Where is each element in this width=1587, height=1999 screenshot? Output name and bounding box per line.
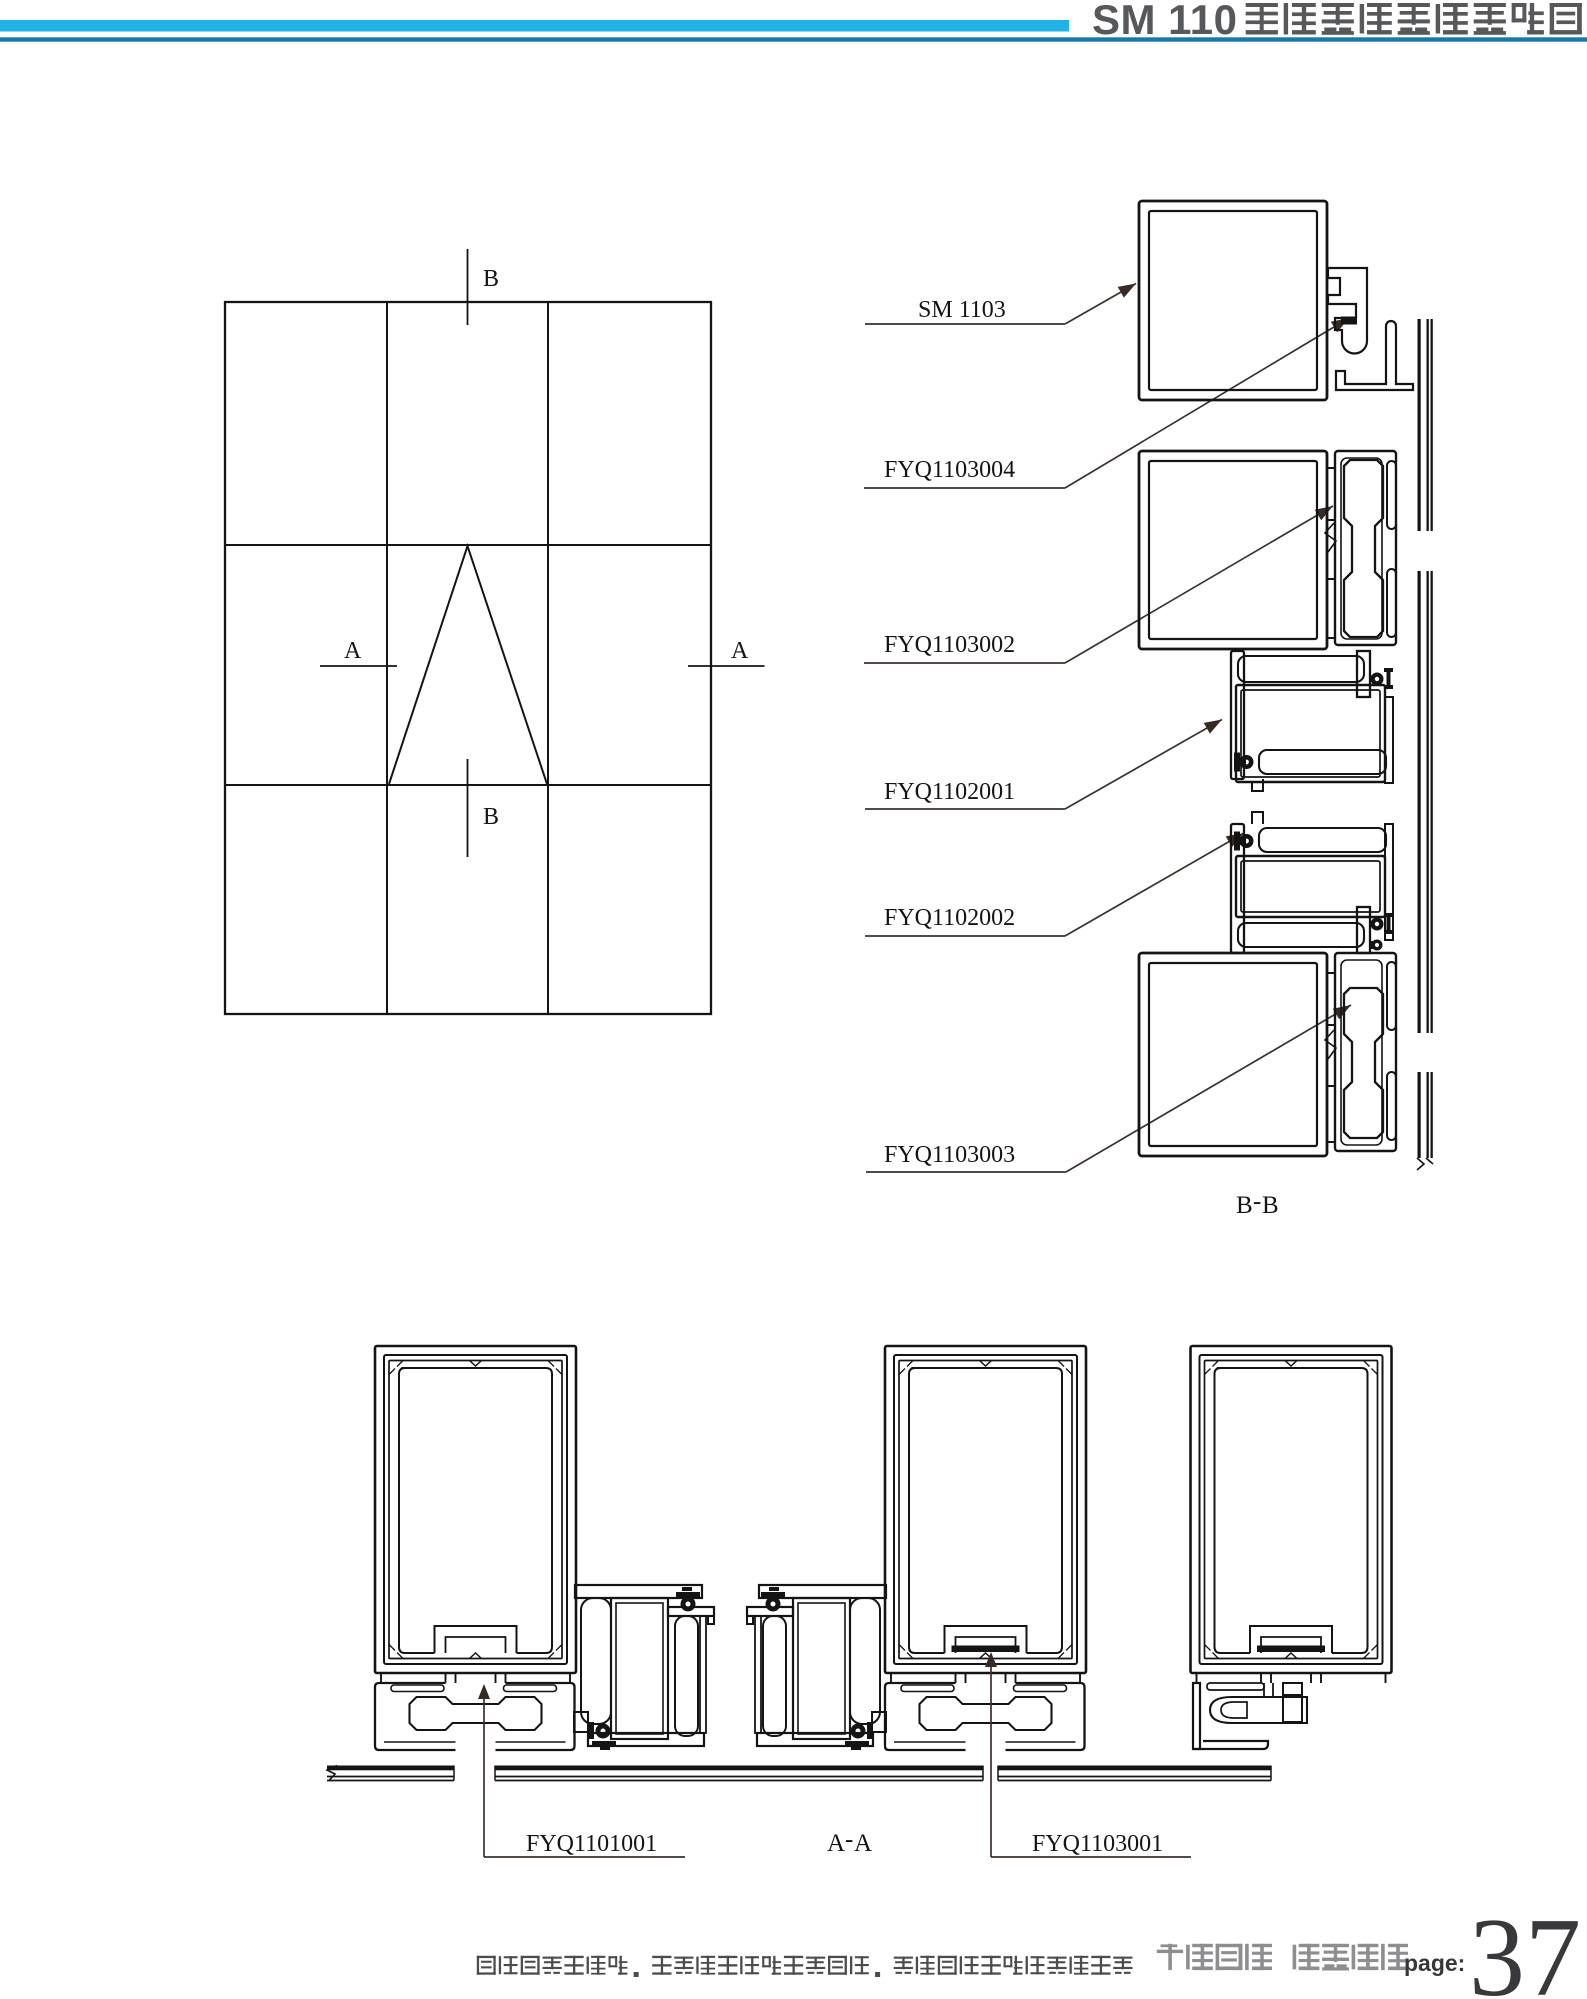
svg-text:A: A [827, 1830, 845, 1857]
svg-text:A: A [344, 638, 362, 664]
svg-text:FYQ1102001: FYQ1102001 [884, 779, 1015, 805]
svg-text:-: - [845, 1826, 853, 1853]
svg-text:-: - [1253, 1188, 1261, 1215]
svg-text:FYQ1103004: FYQ1103004 [884, 457, 1015, 483]
svg-text:37: 37 [1469, 1896, 1581, 1999]
svg-text:B: B [483, 266, 499, 292]
svg-text:A: A [854, 1830, 872, 1857]
svg-text:B: B [483, 804, 499, 830]
svg-text:B: B [1236, 1192, 1253, 1219]
svg-text:B: B [1262, 1192, 1279, 1219]
svg-text:FYQ1103001: FYQ1103001 [1032, 1831, 1163, 1857]
svg-text:SM 110: SM 110 [1092, 0, 1237, 43]
svg-text:FYQ1103002: FYQ1103002 [884, 632, 1015, 658]
svg-text:SM 1103: SM 1103 [918, 297, 1006, 323]
svg-text:A: A [731, 638, 749, 664]
svg-text:page:: page: [1404, 1950, 1465, 1976]
svg-text:FYQ1102002: FYQ1102002 [884, 905, 1015, 931]
svg-text:FYQ1101001: FYQ1101001 [526, 1831, 657, 1857]
svg-text:FYQ1103003: FYQ1103003 [884, 1142, 1015, 1168]
